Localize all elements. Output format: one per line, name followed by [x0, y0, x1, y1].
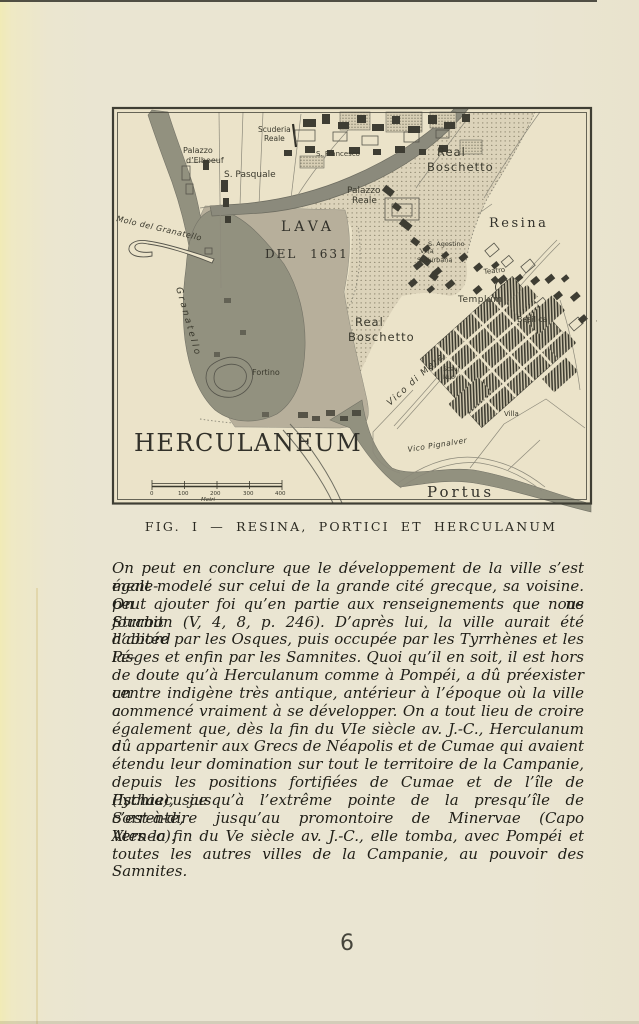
text-line: Vers la fin du Ve siècle av. J.-C., elle…: [112, 828, 584, 846]
label-real-boschetto-upper-2: Boschetto: [427, 160, 494, 174]
text-line: depuis les positions fortifiées de Cumae…: [112, 774, 584, 792]
text-line: c’est-à-dire jusqu’au promontoire de Min…: [112, 810, 584, 828]
scale-tick-0: 0: [150, 491, 154, 497]
label-villa: Villa: [504, 410, 519, 418]
body-text: On peut en conclure que le développement…: [112, 560, 584, 863]
label-herculaneum: HERCULANEUM: [134, 429, 362, 457]
text-line: dû appartenir aux Grecs de Néapolis et d…: [112, 738, 584, 756]
label-palazzo-reale-1: Palazzo: [347, 186, 381, 196]
text-line: étendu leur domination sur tout le terri…: [112, 756, 584, 774]
text-line: ment modelé sur celui de la grande cité …: [112, 578, 584, 596]
text-line: commencé vraiment à se développer. On a …: [112, 703, 584, 721]
scale-tick-400: 400: [275, 491, 286, 497]
text-line: (Ischia), jusqu’à l’extrême pointe de la…: [112, 792, 584, 810]
figure-caption: FIG. I — RESINA, PORTICI ET HERCULANUM: [113, 519, 589, 534]
text-line: également que, dès la fin du VIe siècle …: [112, 721, 584, 739]
label-villa-suburbana-2: Suburbana: [417, 256, 452, 264]
label-palazzo-reale-2: Reale: [352, 196, 377, 206]
label-basilica: Basilica: [517, 315, 548, 324]
label-real-boschetto-lower-1: Real: [355, 315, 384, 329]
map-figure: 0 100 200 300 400 Metri Scuderia Reale P…: [105, 100, 597, 514]
text-line: peut ajouter foi qu’en partie aux rensei…: [112, 596, 584, 614]
scale-tick-300: 300: [243, 491, 254, 497]
label-scuderia-reale-2: Reale: [264, 134, 285, 143]
label-resina: Resina: [489, 216, 548, 231]
label-scuderia-reale-1: Scuderia: [258, 125, 291, 134]
label-fortino: Fortino: [252, 368, 280, 377]
label-scavi-nuovi-1: Scavi: [443, 366, 459, 373]
text-line: de doute qu’à Herculanum comme à Pompéi,…: [112, 667, 584, 685]
text-line: Strabon (V, 4, 8, p. 246). D’après lui, …: [112, 614, 584, 632]
label-scavi-nuovi-2: Nuovi: [443, 374, 461, 381]
label-lava-2: DEL 1631: [265, 247, 349, 261]
text-line: toutes les autres villes de la Campanie,…: [112, 846, 584, 864]
page-top-edge-shadow: [0, 0, 597, 2]
page-number: 6: [340, 931, 354, 956]
label-templum: Templum: [457, 295, 502, 305]
text-line: On peut en conclure que le développement…: [112, 560, 584, 578]
text-line: habitée par les Osques, puis occupée par…: [112, 631, 584, 649]
label-villa-suburbana-1: Villa: [420, 247, 434, 255]
page-crease: [36, 588, 38, 1024]
label-portus: Portus: [427, 483, 494, 501]
label-lava-1: LAVA: [281, 219, 335, 235]
label-s-francesco: S. Francesco: [316, 150, 360, 158]
text-line: lasges et enfin par les Samnites. Quoi q…: [112, 649, 584, 667]
label-s-pasquale: S. Pasquale: [224, 170, 276, 180]
label-palazzo-elboeuf-1: Palazzo: [183, 146, 213, 155]
scale-tick-100: 100: [178, 491, 189, 497]
label-real-boschetto-lower-2: Boschetto: [348, 330, 415, 344]
label-real-boschetto-upper-1: Real: [437, 145, 466, 159]
label-palazzo-elboeuf-2: d’Elboeuf: [186, 156, 224, 165]
scale-unit: Metri: [201, 497, 216, 503]
text-line: centre indigène très antique, antérieur …: [112, 685, 584, 703]
